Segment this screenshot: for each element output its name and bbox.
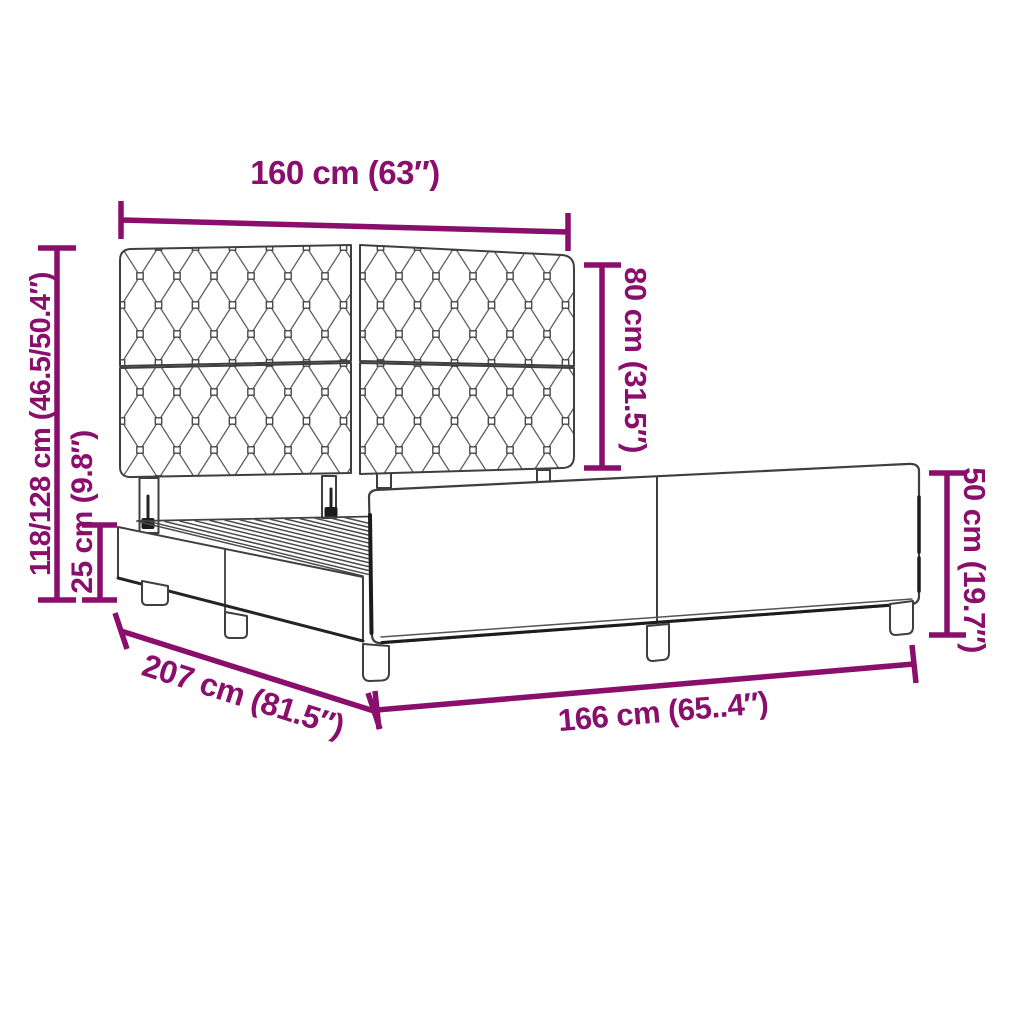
bed-frame-drawing [118, 245, 919, 681]
leg [890, 601, 913, 635]
diagram-canvas: 160 cm (63″) 118/128 cm (46.5/50.4″) 25 … [0, 0, 1024, 1024]
label-footboard-height: 50 cm (19.7″) [957, 467, 992, 653]
label-headboard-height: 80 cm (31.5″) [618, 267, 653, 453]
side-panel [369, 464, 919, 643]
leg [225, 612, 247, 638]
dim-line-headboard-height [584, 265, 621, 468]
label-base-height: 25 cm (9.8″) [66, 430, 99, 593]
leg [363, 644, 389, 681]
leg [142, 581, 168, 605]
label-total-height: 118/128 cm (46.5/50.4″) [25, 272, 57, 576]
bed-frame-dimension-figure: 160 cm (63″) 118/128 cm (46.5/50.4″) 25 … [0, 0, 1024, 1024]
bolt-nut [325, 507, 338, 517]
headboard-panel-top-right [360, 245, 574, 366]
headboard-panel-top-left [120, 245, 351, 366]
leg [647, 624, 669, 661]
headboard [120, 245, 574, 477]
label-headboard-width: 160 cm (63″) [250, 154, 440, 191]
side-panel-shade-left [370, 515, 372, 633]
headboard-post [537, 470, 550, 482]
headboard-panel-bottom-right [360, 363, 574, 474]
dim-line-headboard-width [121, 201, 568, 251]
headboard-panel-bottom-left [120, 363, 351, 477]
